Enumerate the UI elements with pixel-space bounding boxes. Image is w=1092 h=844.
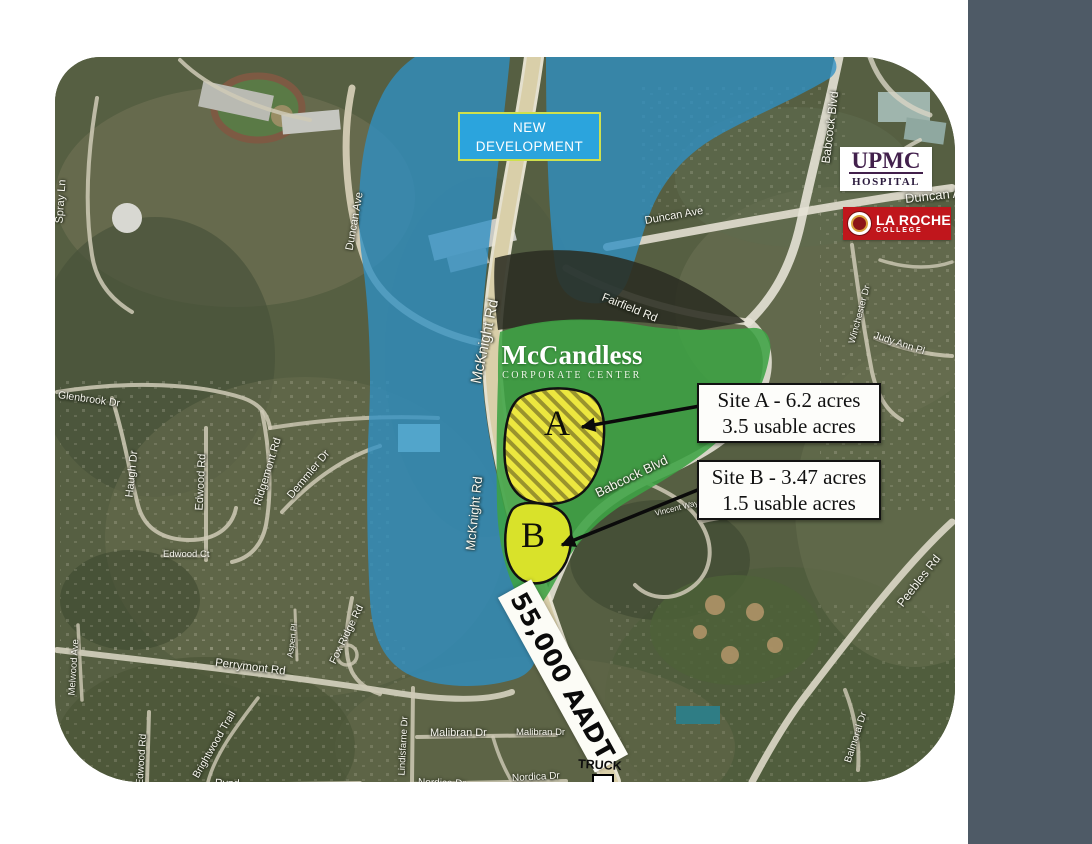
site-b-letter: B: [521, 517, 545, 553]
road-label: Nordica Dr: [418, 777, 466, 782]
aerial-map: Spray Ln Duncan Ave Duncan Ave Duncan Av…: [55, 57, 955, 782]
flyer-canvas: Spray Ln Duncan Ave Duncan Ave Duncan Av…: [0, 0, 1092, 844]
road-label: Duncan Ave: [644, 206, 704, 227]
road-label: Haugh Dr: [125, 450, 141, 498]
road-label: Perrymont Rd: [214, 658, 286, 678]
traffic-count-banner: 55,000 AADT: [498, 579, 628, 772]
mccandless-title: McCandless: [498, 341, 646, 369]
site-b-callout: Site B - 3.47 acres 1.5 usable acres: [697, 460, 881, 520]
road-label: Fox Ridge Rd: [328, 603, 366, 666]
road-label: Rynd: [215, 778, 240, 782]
site-a-letter: A: [544, 405, 570, 441]
road-label: Edwood Ct: [163, 549, 209, 560]
road-label: Winchester Dr: [847, 284, 873, 345]
laroche-seal-icon: [847, 211, 872, 236]
new-development-line1: NEW: [513, 118, 546, 137]
road-label: Vincent Way: [654, 497, 700, 518]
upmc-name: UPMC: [849, 150, 924, 174]
road-label: Aspen Pl: [285, 623, 301, 658]
road-label: Glenbrook Dr: [57, 390, 120, 410]
map-labels: Spray Ln Duncan Ave Duncan Ave Duncan Av…: [55, 57, 955, 782]
road-label: Fairfield Rd: [600, 292, 659, 324]
road-label: Babcock Blvd: [821, 91, 841, 165]
laroche-name: LA ROCHE: [876, 213, 951, 227]
site-a-line1: Site A - 6.2 acres: [699, 387, 879, 413]
truck-route-shield-icon: [592, 774, 614, 782]
road-label: Spray Ln: [55, 179, 69, 224]
road-label: Peebles Rd: [896, 553, 943, 609]
brand-sidebar: CUSHMAN& WAKEFIELD® G GRANT STREET A S S…: [968, 0, 1092, 844]
road-label: Balmoral Dr: [843, 711, 870, 765]
road-label: Duncan Ave: [345, 191, 366, 251]
road-label: Judy Ann Pl: [872, 330, 926, 357]
laroche-college-text: COLLEGE: [876, 227, 951, 235]
road-label: Melwood Ave: [67, 639, 82, 696]
road-label: McKnight Rd: [465, 476, 484, 551]
road-label: Edwood Rd: [135, 734, 150, 782]
road-label: Edwood Rd: [195, 453, 209, 510]
site-a-callout: Site A - 6.2 acres 3.5 usable acres: [697, 383, 881, 443]
road-label: Lindisfarne Dr: [397, 716, 411, 776]
site-a-line2: 3.5 usable acres: [699, 413, 879, 439]
road-label: Demmler Dr: [286, 449, 333, 501]
traffic-count-text: 55,000 AADT: [505, 587, 621, 765]
upmc-hospital-label: UPMC HOSPITAL: [840, 147, 932, 191]
road-label: Brightwood Trail: [191, 710, 238, 781]
road-label: Malibran Dr: [430, 728, 487, 739]
road-label: McKnight Rd: [471, 298, 500, 384]
site-b-line2: 1.5 usable acres: [699, 490, 879, 516]
upmc-hospital-text: HOSPITAL: [852, 176, 920, 188]
laroche-college-label: LA ROCHE COLLEGE: [843, 207, 951, 240]
new-development-callout: NEW DEVELOPMENT: [458, 112, 601, 161]
site-b-line1: Site B - 3.47 acres: [699, 464, 879, 490]
truck-route-label: TRUCK: [578, 757, 622, 773]
road-label: Nordica Dr: [512, 771, 560, 782]
road-label: Ridgemont Rd: [253, 437, 284, 507]
road-label: Malibran Dr: [516, 727, 565, 738]
new-development-line2: DEVELOPMENT: [476, 137, 584, 156]
mccandless-subtitle: CORPORATE CENTER: [498, 370, 646, 381]
mccandless-label: McCandless CORPORATE CENTER: [498, 341, 646, 381]
road-label: Babcock Blvd: [594, 454, 670, 498]
